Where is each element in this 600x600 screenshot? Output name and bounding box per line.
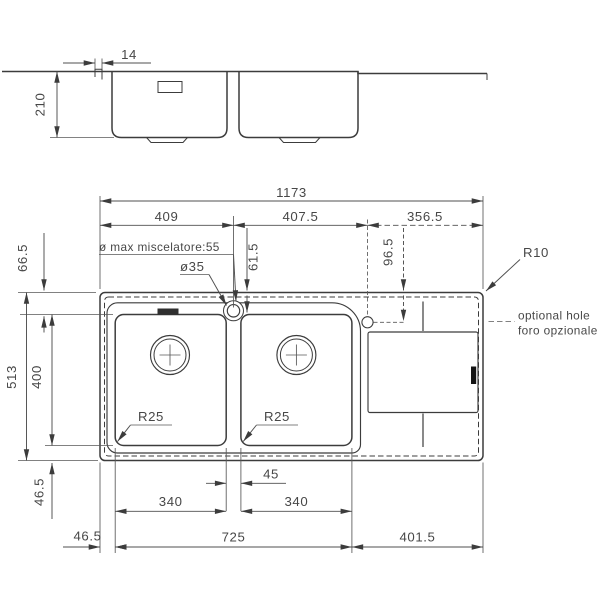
dim-bowl-depth-label: 400	[29, 365, 44, 389]
dim-overall-width-label: 1173	[276, 185, 307, 200]
dim-section-left-label: 409	[155, 209, 179, 224]
dim-faucet-offset-label: 61.5	[246, 243, 261, 271]
dim-drainboard-label: 401.5	[399, 530, 435, 545]
dim-top-edge-to-bowl-label: 66.5	[15, 244, 30, 272]
overflow-slot	[158, 309, 179, 315]
right-bowl-drain	[277, 336, 316, 375]
radius-corner-leader	[486, 260, 520, 292]
radius-bowl-left-leader	[118, 425, 131, 442]
drainboard-drain-slot	[471, 367, 476, 385]
optional-hole-label-en: optional hole	[518, 309, 590, 323]
dim-left-edge-to-bowl-label: 46.5	[73, 529, 101, 544]
dim-section-center-label: 407.5	[282, 209, 318, 224]
radius-bowl-right-label: R25	[264, 409, 290, 424]
elevation-counter-line	[2, 72, 487, 74]
faucet-max-note-label: ø max miscelatore:55	[99, 240, 220, 254]
elevation-right-bowl	[239, 72, 358, 138]
dim-bowl-gap-label: 45	[263, 467, 279, 482]
dim-rim-lip-label: 14	[121, 47, 137, 62]
dim-14-extension-lines	[95, 59, 102, 70]
optional-hole-label-it: foro opzionale	[518, 324, 598, 338]
bowl-surround-panel	[107, 303, 361, 453]
elevation-overflow-opening	[158, 82, 182, 93]
faucet-hole-note-label: ø35	[180, 259, 205, 274]
dim-section-right-label: 356.5	[407, 209, 443, 224]
sink-outline	[100, 293, 483, 461]
radius-bowl-left-label: R25	[138, 409, 164, 424]
radius-bowl-right-leader	[243, 425, 256, 442]
radius-corner-label: R10	[523, 245, 549, 260]
optional-hole	[362, 317, 373, 328]
dim-overall-depth-label: 513	[4, 365, 19, 389]
drainboard-tray	[368, 332, 478, 413]
sink-technical-drawing: 14 210	[0, 0, 600, 600]
dim-depth-label: 210	[33, 93, 48, 117]
dim-bowl-right-width-label: 340	[284, 494, 308, 509]
left-bowl-drain	[151, 336, 190, 375]
plan-view: 1173 409 407.5 356.5 61.5 96.5 R10 optio…	[4, 185, 598, 553]
dim-bowl-left-width-label: 340	[159, 494, 183, 509]
dim-optional-hole-offset-label: 96.5	[381, 238, 396, 266]
dim-bowl-to-bottom-label: 46.5	[32, 478, 47, 506]
elevation-view: 14 210	[2, 47, 487, 143]
dim-bowls-overall-label: 725	[222, 530, 246, 545]
faucet-hole-note-leader	[209, 275, 227, 306]
right-bowl	[241, 315, 352, 446]
left-bowl	[115, 315, 226, 446]
